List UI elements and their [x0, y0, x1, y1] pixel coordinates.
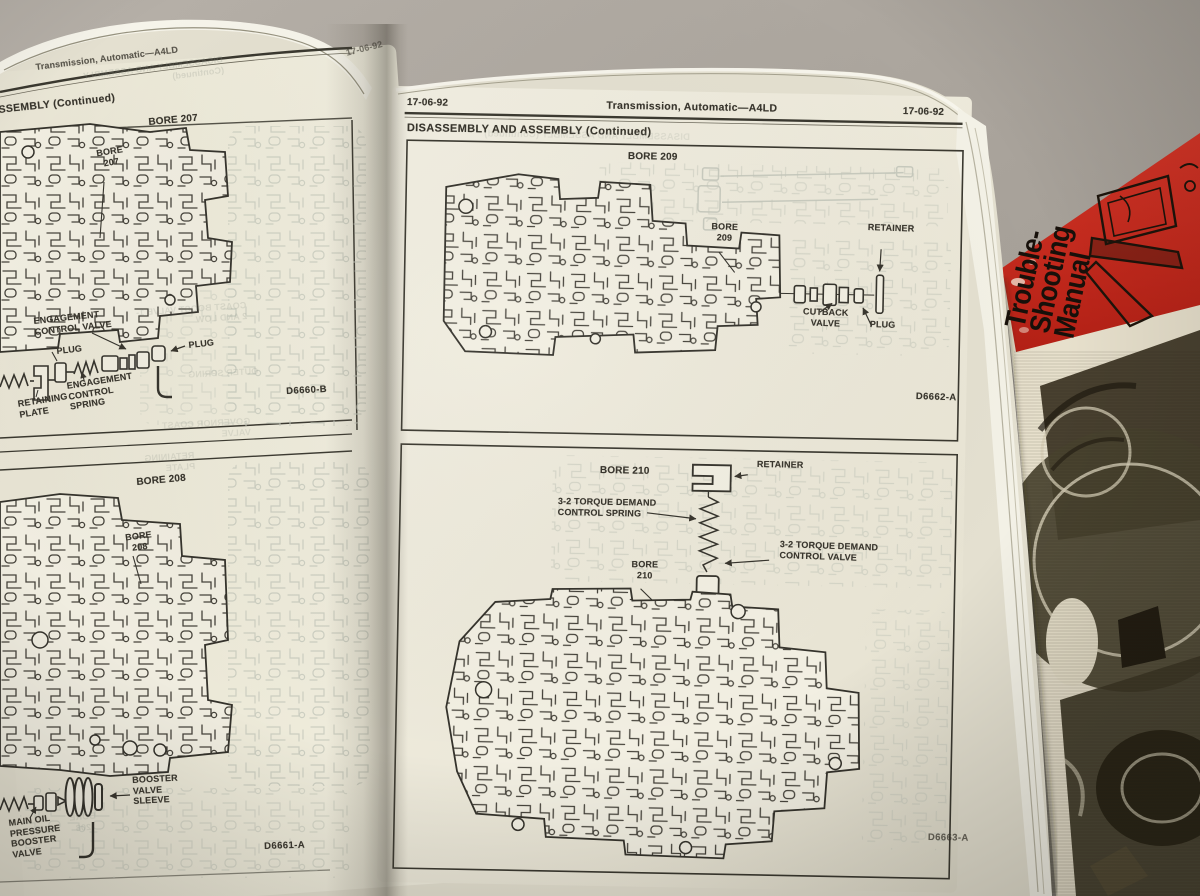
cutback-valve-label: CUTBACK VALVE — [795, 306, 856, 329]
torque-demand-valve-label: 3-2 TORQUE DEMAND CONTROL VALVE — [779, 539, 884, 564]
bore-208-callout: BORE 208 — [121, 529, 157, 554]
retainer-210-label: RETAINER — [757, 459, 804, 470]
photo-scene: Transmission, Automatic—A4LD DISASSEMBLY… — [0, 0, 1200, 896]
plug-209-label: PLUG — [870, 319, 896, 330]
ghost-bore-208-label: BORE 208 — [64, 810, 102, 834]
bore-210-callout: BORE 210 — [628, 559, 662, 581]
bore-209-title: BORE 209 — [628, 151, 678, 164]
right-page-number-left: 17-06-92 — [407, 97, 448, 110]
figure-id-d6660b: D6660-B — [286, 384, 327, 397]
figure-id-d6663a: D6663-A — [928, 832, 969, 844]
torque-demand-spring-label: 3-2 TORQUE DEMAND CONTROL SPRING — [558, 496, 662, 519]
main-oil-pressure-booster-valve-label: MAIN OIL PRESSURE BOOSTER VALVE — [8, 811, 69, 860]
booster-valve-sleeve-label: BOOSTER VALVE SLEEVE — [132, 772, 188, 807]
figure-id-d6661a: D6661-A — [264, 840, 305, 853]
figure-id-d6662a: D6662-A — [916, 391, 957, 404]
retainer-209-label: RETAINER — [868, 222, 915, 234]
bore-210-title: BORE 210 — [600, 465, 650, 478]
bore-209-callout: BORE 209 — [707, 221, 742, 243]
right-page-number-right: 17-06-92 — [903, 106, 945, 119]
